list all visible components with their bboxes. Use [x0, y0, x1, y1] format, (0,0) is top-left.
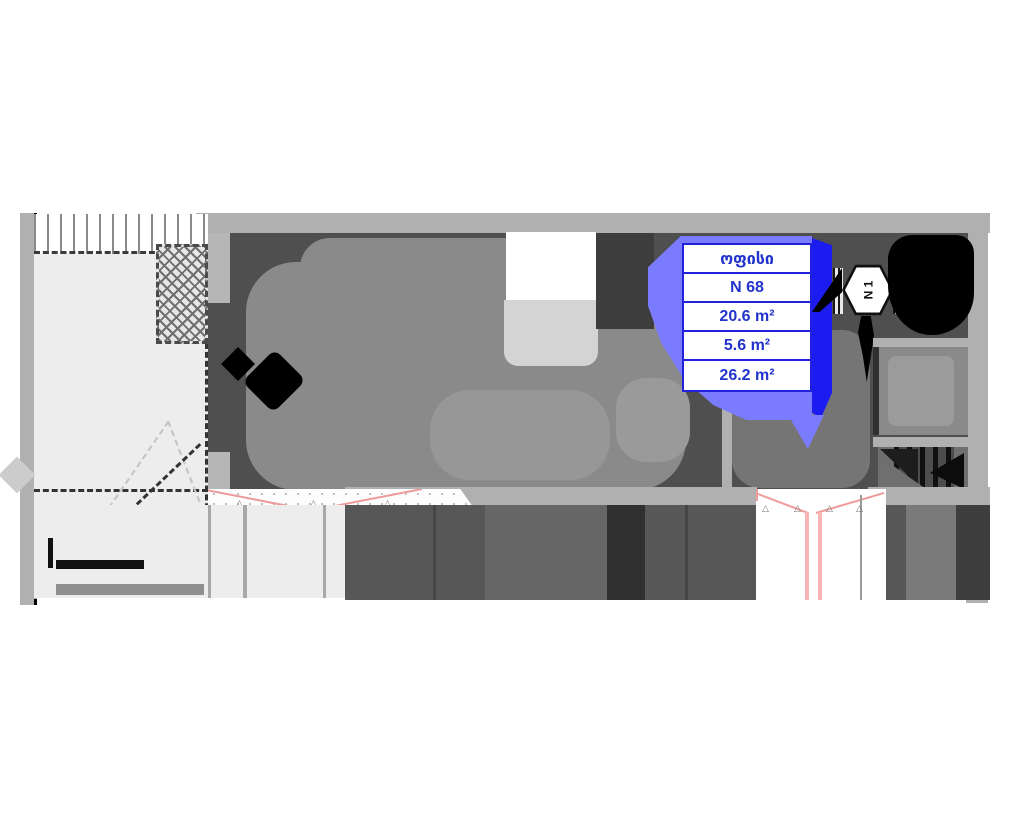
wall-stub-bottom	[208, 452, 230, 489]
lower-band-stripe-dark	[607, 505, 645, 600]
triangle-marker-icon	[826, 498, 836, 508]
rotated-label-box	[156, 244, 208, 344]
opening-red-jamb-2	[818, 512, 822, 600]
shaft-upper	[506, 232, 596, 302]
room-blob-light-1	[430, 390, 610, 480]
triangle-marker-icon	[762, 498, 772, 508]
unit-highlight-edge	[812, 238, 832, 418]
triangle-marker-icon	[856, 498, 866, 508]
bottom-wall-right-segment	[868, 487, 990, 505]
lower-band-stripe-light	[485, 505, 607, 600]
opening-red-jamb-1	[805, 512, 809, 600]
stair-badge-label: N 1	[861, 281, 875, 300]
step-mark-black	[56, 560, 144, 569]
stairwell	[878, 447, 968, 489]
triangle-marker-icon	[384, 493, 394, 503]
lower-band-left	[345, 505, 756, 600]
unit-room-type: ოფისი	[684, 245, 810, 274]
panel-divider-2	[243, 505, 247, 598]
right-room-edge	[873, 347, 879, 435]
opening-with-red-marks	[756, 489, 886, 600]
floor-plan: ოფისი N 68 20.6 m² 5.6 m² 26.2 m² N 1	[0, 0, 1010, 818]
unit-area-1: 20.6 m²	[684, 303, 810, 332]
panel-divider-1	[208, 505, 211, 598]
lower-band-right-stripe-light	[906, 505, 956, 600]
step-mark-gray	[56, 584, 204, 595]
top-wall	[196, 213, 990, 233]
lower-band-separator-2	[685, 505, 688, 600]
unit-area-2: 5.6 m²	[684, 332, 810, 361]
panel-divider-3	[323, 505, 326, 598]
unit-info-card[interactable]: ოფისი N 68 20.6 m² 5.6 m² 26.2 m²	[682, 243, 812, 392]
triangle-marker-icon	[794, 498, 804, 508]
unit-area-3: 26.2 m²	[684, 361, 810, 390]
triangle-marker-icon	[310, 493, 320, 503]
right-room-inner	[888, 356, 954, 426]
right-wall-band-upper	[873, 338, 968, 347]
triangle-marker-icon	[236, 493, 246, 503]
lower-band-right	[886, 505, 990, 600]
lower-left-panels	[34, 505, 345, 598]
right-wall-band-lower	[873, 437, 968, 447]
wall-stub-top	[208, 233, 230, 303]
opening-red-tick	[756, 489, 758, 501]
lower-band-separator-1	[433, 505, 436, 600]
unit-number: N 68	[684, 274, 810, 303]
step-mark-vert	[48, 538, 53, 568]
black-filled-room	[888, 235, 974, 335]
dark-zone-beside-shaft	[596, 233, 654, 329]
shaft-lower	[504, 300, 598, 366]
unit-highlight-tongue	[788, 415, 824, 449]
lower-band-right-stripe-dark	[956, 505, 990, 600]
